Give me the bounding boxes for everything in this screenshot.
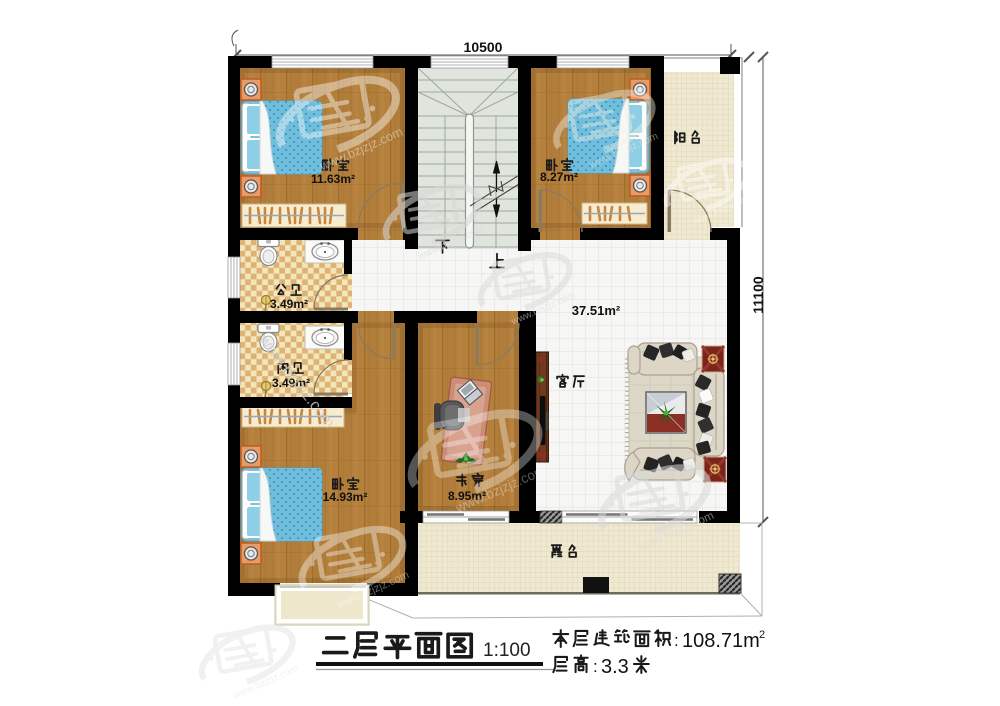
svg-text:108.71m: 108.71m bbox=[682, 630, 760, 652]
svg-text:11100: 11100 bbox=[750, 276, 766, 314]
svg-text:8.27m²: 8.27m² bbox=[540, 170, 578, 184]
svg-text:3.3: 3.3 bbox=[601, 656, 629, 678]
svg-text::: : bbox=[674, 631, 679, 650]
svg-text:11.63m²: 11.63m² bbox=[311, 172, 355, 186]
svg-text:10500: 10500 bbox=[464, 39, 503, 55]
svg-text::: : bbox=[593, 657, 598, 676]
svg-text:3.49m²: 3.49m² bbox=[270, 297, 308, 311]
svg-text:37.51m²: 37.51m² bbox=[572, 303, 621, 318]
svg-text:1:100: 1:100 bbox=[483, 640, 531, 661]
svg-text:14.93m²: 14.93m² bbox=[323, 490, 368, 504]
svg-text:2: 2 bbox=[759, 629, 765, 641]
